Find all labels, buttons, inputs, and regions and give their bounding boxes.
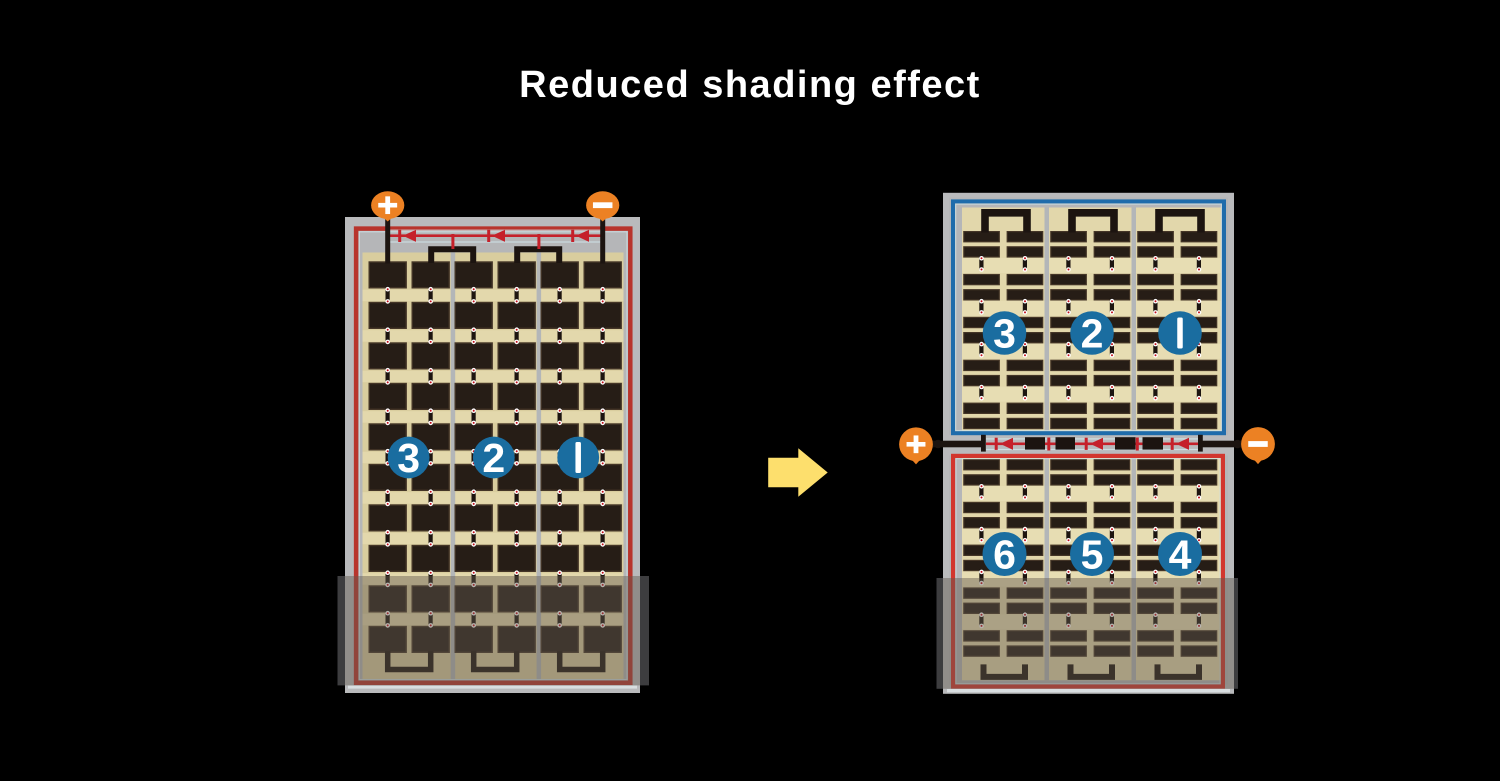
svg-text:3: 3 xyxy=(397,435,420,481)
svg-text:4: 4 xyxy=(1169,532,1192,578)
svg-text:2: 2 xyxy=(482,435,505,481)
svg-text:6: 6 xyxy=(993,532,1016,578)
svg-text:2: 2 xyxy=(1081,311,1104,357)
svg-text:5: 5 xyxy=(1081,532,1104,578)
svg-text:3: 3 xyxy=(993,311,1016,357)
